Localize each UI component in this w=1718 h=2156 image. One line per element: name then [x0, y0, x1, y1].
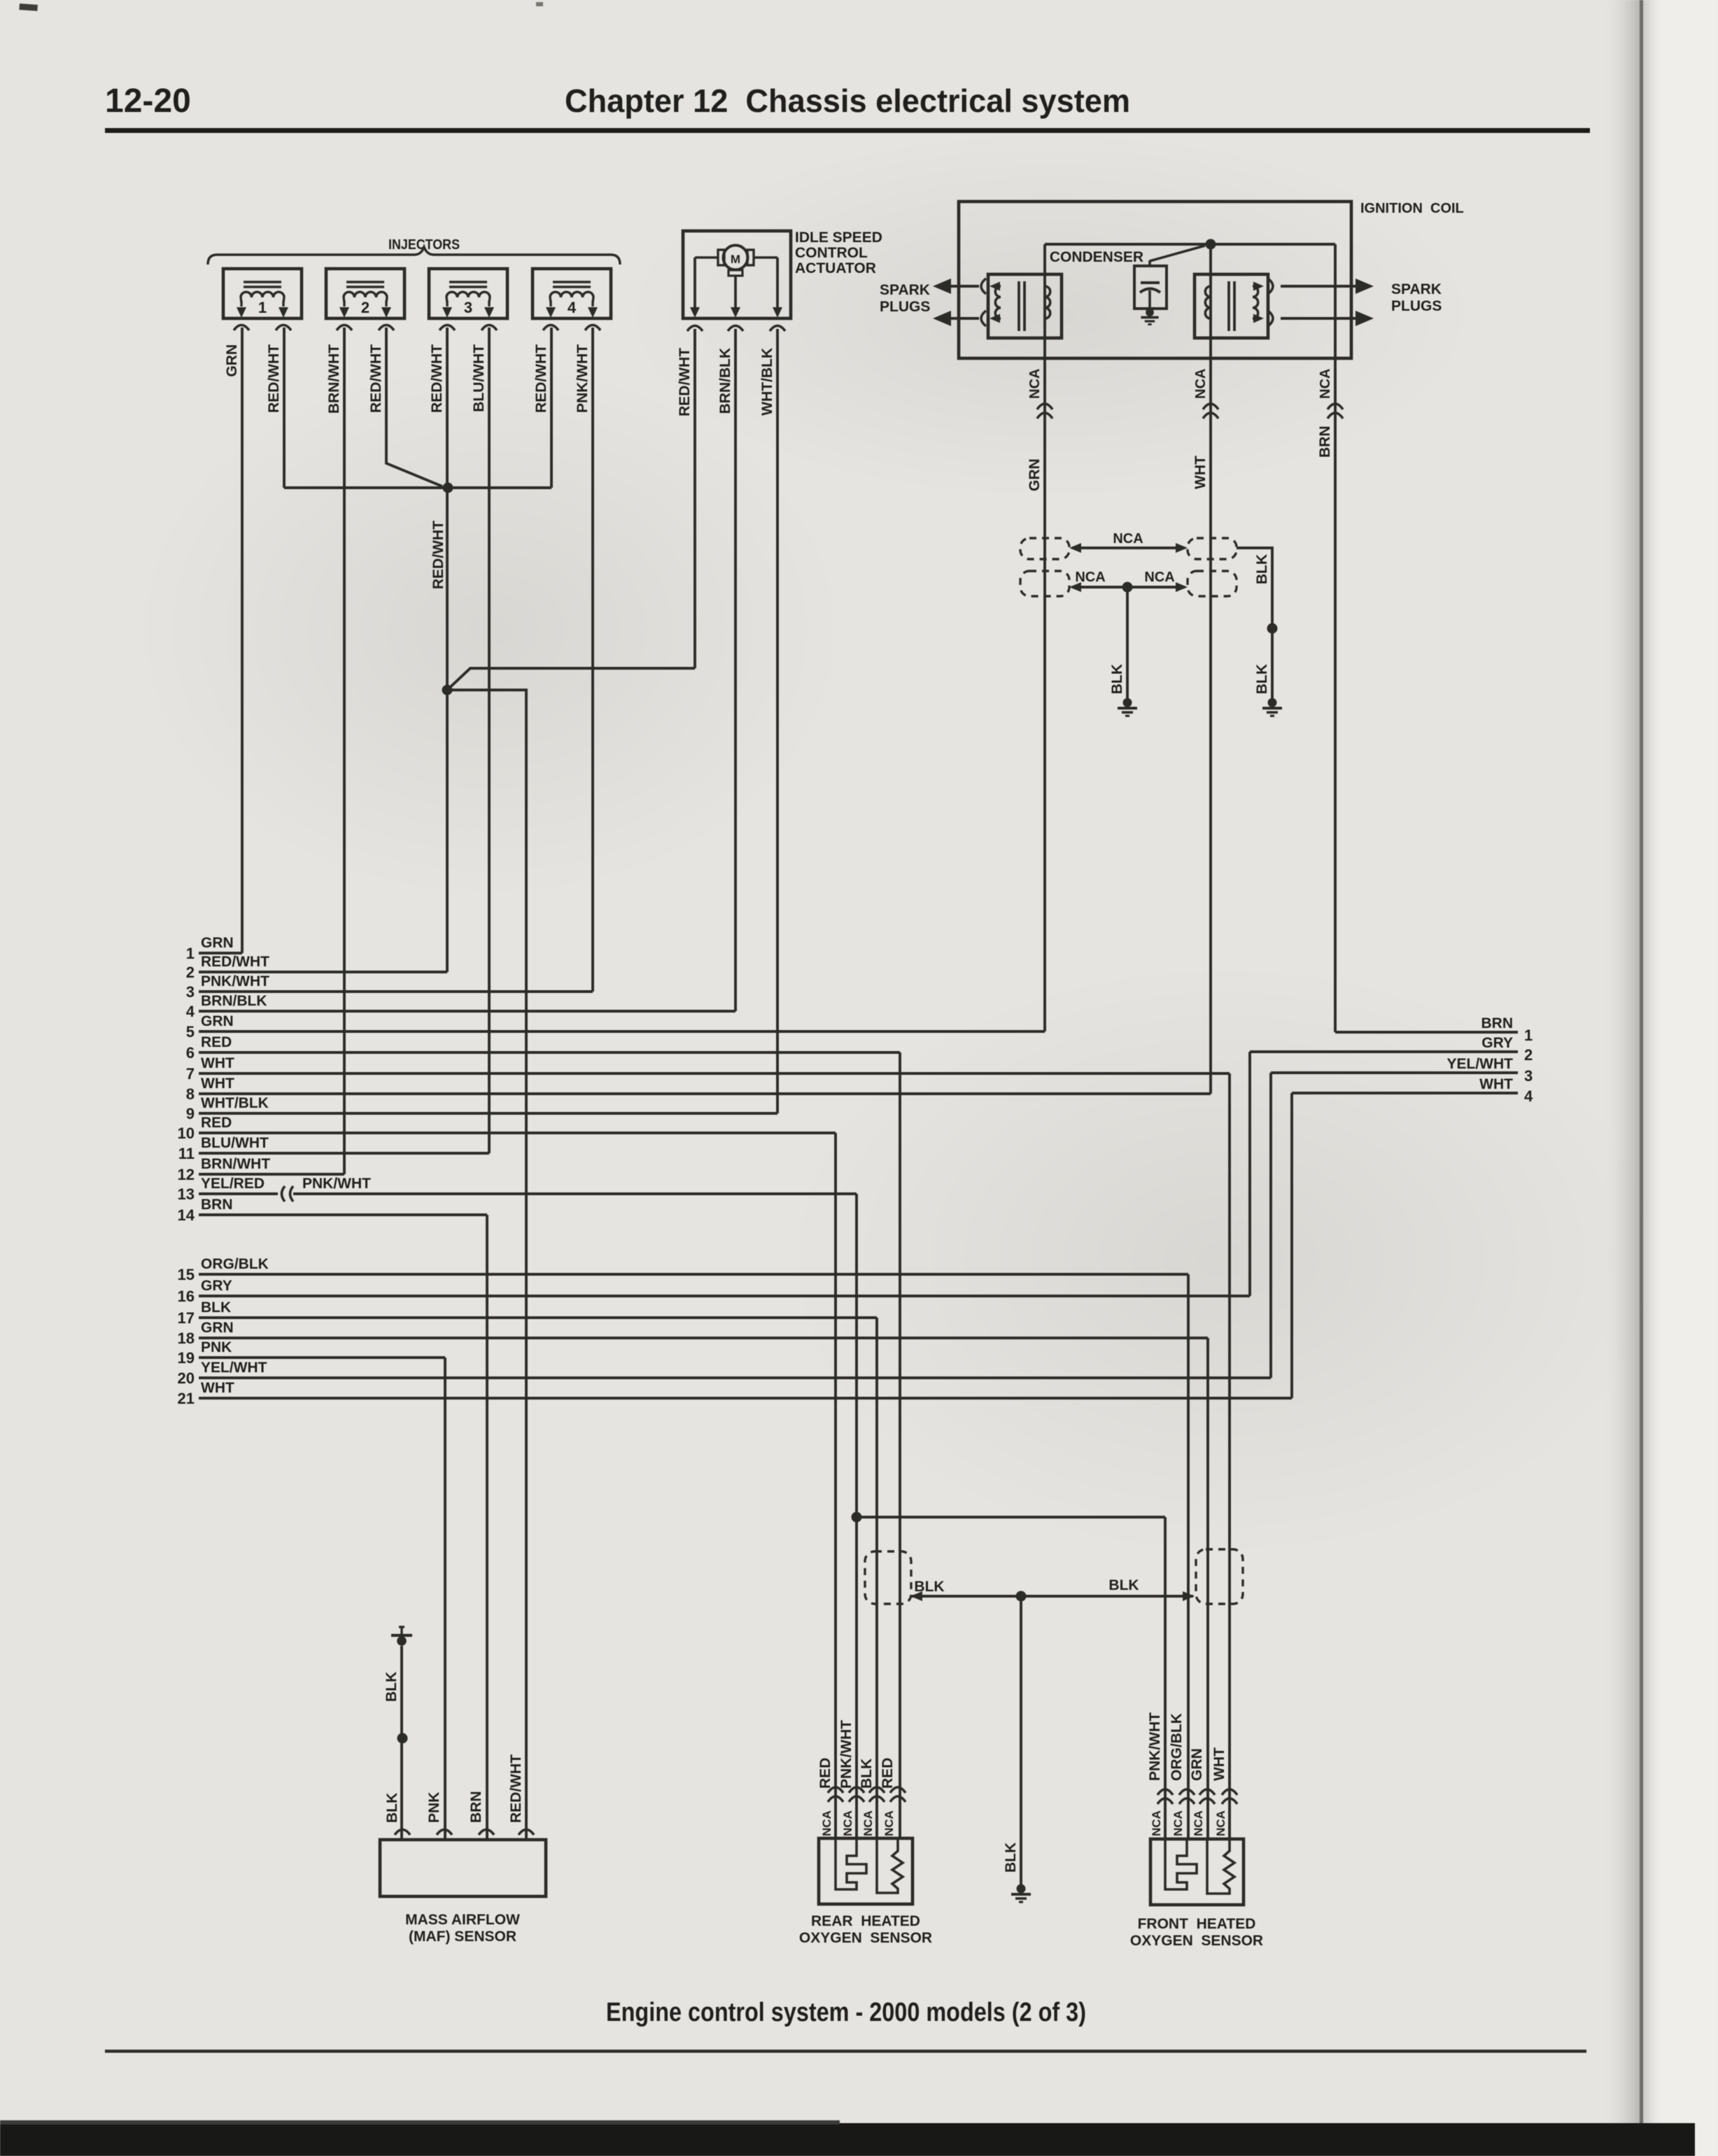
svg-text:GRN: GRN — [201, 1320, 234, 1336]
svg-text:WHT: WHT — [1211, 1747, 1227, 1781]
svg-text:BLK: BLK — [384, 1793, 400, 1823]
svg-text:NCA: NCA — [1075, 570, 1105, 585]
svg-text:SPARK: SPARK — [880, 282, 930, 298]
svg-text:CONTROL: CONTROL — [795, 245, 868, 261]
svg-text:(MAF) SENSOR: (MAF) SENSOR — [409, 1929, 516, 1945]
svg-text:GRN: GRN — [1027, 458, 1043, 491]
svg-text:RED/WHT: RED/WHT — [368, 344, 384, 413]
svg-text:YEL/RED: YEL/RED — [201, 1176, 265, 1192]
svg-text:YEL/WHT: YEL/WHT — [1447, 1056, 1514, 1072]
svg-text:4: 4 — [1524, 1087, 1533, 1105]
svg-text:ORG/BLK: ORG/BLK — [201, 1256, 269, 1272]
svg-text:NCA: NCA — [1193, 369, 1209, 399]
svg-text:BRN: BRN — [201, 1197, 233, 1213]
svg-text:3: 3 — [186, 983, 195, 1001]
svg-text:NCA: NCA — [841, 1810, 854, 1836]
svg-text:GRN: GRN — [201, 935, 234, 951]
svg-text:18: 18 — [178, 1330, 195, 1347]
svg-text:RED/WHT: RED/WHT — [201, 954, 269, 970]
svg-text:NCA: NCA — [861, 1810, 875, 1836]
svg-text:NCA: NCA — [1171, 1810, 1185, 1836]
svg-text:REAR HEATED: REAR HEATED — [811, 1913, 920, 1929]
svg-text:BLK: BLK — [1109, 664, 1125, 694]
svg-text:13: 13 — [178, 1185, 195, 1203]
svg-text:RED: RED — [201, 1115, 232, 1131]
svg-text:RED: RED — [880, 1758, 896, 1789]
svg-text:16: 16 — [178, 1288, 195, 1305]
svg-text:WHT/BLK: WHT/BLK — [759, 348, 775, 416]
svg-text:BLK: BLK — [914, 1579, 944, 1595]
svg-text:NCA: NCA — [820, 1810, 833, 1836]
svg-text:NCA: NCA — [1144, 570, 1174, 585]
svg-text:NCA: NCA — [1214, 1810, 1227, 1836]
svg-text:RED/WHT: RED/WHT — [430, 521, 446, 589]
svg-text:4: 4 — [186, 1003, 195, 1020]
svg-text:4: 4 — [568, 299, 577, 316]
svg-text:PLUGS: PLUGS — [880, 299, 930, 315]
svg-text:IGNITION COIL: IGNITION COIL — [1360, 201, 1464, 216]
svg-text:6: 6 — [186, 1044, 195, 1062]
svg-text:2: 2 — [361, 299, 369, 316]
svg-text:3: 3 — [464, 299, 472, 316]
svg-text:M: M — [731, 253, 740, 266]
svg-text:12: 12 — [178, 1166, 195, 1183]
svg-text:2: 2 — [186, 964, 195, 981]
svg-text:OXYGEN SENSOR: OXYGEN SENSOR — [799, 1930, 932, 1946]
svg-text:GRN: GRN — [224, 344, 240, 377]
svg-text:12-20: 12-20 — [105, 83, 191, 120]
svg-text:BRN/WHT: BRN/WHT — [201, 1156, 270, 1172]
svg-text:BRN: BRN — [1317, 426, 1333, 458]
svg-text:17: 17 — [178, 1309, 195, 1327]
svg-text:1: 1 — [1524, 1027, 1533, 1044]
svg-text:ACTUATOR: ACTUATOR — [795, 260, 876, 276]
svg-text:BLK: BLK — [1254, 664, 1270, 694]
svg-text:10: 10 — [178, 1125, 195, 1142]
svg-text:FRONT HEATED: FRONT HEATED — [1138, 1916, 1256, 1932]
svg-text:WHT: WHT — [1479, 1076, 1513, 1092]
svg-text:PNK: PNK — [426, 1792, 442, 1823]
svg-text:Engine control system - 2000 m: Engine control system - 2000 models (2 o… — [606, 1998, 1086, 2027]
svg-text:PNK/WHT: PNK/WHT — [201, 973, 269, 989]
svg-text:PNK/WHT: PNK/WHT — [302, 1176, 371, 1192]
svg-text:14: 14 — [178, 1206, 195, 1224]
svg-text:5: 5 — [186, 1023, 195, 1041]
svg-text:BLK: BLK — [1003, 1843, 1019, 1873]
svg-text:GRN: GRN — [201, 1013, 234, 1029]
svg-text:GRY: GRY — [201, 1278, 232, 1294]
svg-text:BLK: BLK — [383, 1672, 400, 1702]
svg-text:RED: RED — [201, 1034, 232, 1050]
svg-text:PNK/WHT: PNK/WHT — [575, 344, 591, 413]
svg-text:PNK/WHT: PNK/WHT — [838, 1720, 854, 1789]
svg-text:BRN: BRN — [468, 1791, 484, 1824]
svg-text:BLK: BLK — [1254, 554, 1270, 584]
svg-text:RED/WHT: RED/WHT — [266, 344, 282, 413]
svg-text:WHT: WHT — [201, 1380, 234, 1396]
svg-text:NCA: NCA — [1027, 369, 1043, 399]
svg-text:RED/WHT: RED/WHT — [508, 1754, 524, 1823]
svg-text:GRY: GRY — [1481, 1035, 1513, 1051]
svg-text:BRN: BRN — [1481, 1015, 1514, 1031]
svg-text:CONDENSER: CONDENSER — [1050, 249, 1143, 265]
svg-text:BRN/BLK: BRN/BLK — [717, 348, 733, 414]
svg-text:RED/WHT: RED/WHT — [677, 348, 693, 416]
svg-text:8: 8 — [186, 1085, 195, 1103]
svg-text:2: 2 — [1524, 1046, 1533, 1064]
svg-text:MASS AIRFLOW: MASS AIRFLOW — [405, 1912, 520, 1928]
svg-text:BRN/BLK: BRN/BLK — [201, 993, 267, 1009]
svg-text:OXYGEN SENSOR: OXYGEN SENSOR — [1130, 1933, 1263, 1949]
svg-text:1: 1 — [186, 945, 195, 962]
svg-text:BLK: BLK — [201, 1299, 231, 1316]
svg-text:RED/WHT: RED/WHT — [429, 344, 445, 413]
svg-text:PNK: PNK — [201, 1339, 232, 1355]
svg-text:PNK/WHT: PNK/WHT — [1147, 1712, 1163, 1781]
svg-text:BLU/WHT: BLU/WHT — [471, 344, 487, 412]
svg-text:GRN: GRN — [1189, 1748, 1205, 1781]
svg-text:BLU/WHT: BLU/WHT — [201, 1135, 269, 1151]
svg-text:Chapter 12 Chassis electrical: Chapter 12 Chassis electrical system — [565, 83, 1130, 119]
svg-text:15: 15 — [178, 1266, 195, 1283]
svg-text:SPARK: SPARK — [1391, 281, 1442, 297]
svg-text:9: 9 — [186, 1105, 195, 1122]
svg-text:3: 3 — [1524, 1067, 1533, 1085]
svg-text:NCA: NCA — [1318, 369, 1333, 399]
svg-text:RED: RED — [817, 1758, 833, 1789]
svg-text:NCA: NCA — [1192, 1810, 1205, 1836]
svg-text:PLUGS: PLUGS — [1391, 298, 1442, 314]
svg-text:7: 7 — [186, 1065, 195, 1083]
svg-text:IDLE SPEED: IDLE SPEED — [795, 230, 882, 246]
svg-text:WHT: WHT — [1192, 456, 1209, 489]
svg-text:NCA: NCA — [882, 1810, 896, 1836]
svg-text:WHT: WHT — [201, 1076, 234, 1092]
svg-text:BRN/WHT: BRN/WHT — [326, 344, 342, 414]
svg-text:11: 11 — [178, 1145, 195, 1162]
svg-text:20: 20 — [178, 1369, 195, 1387]
svg-text:BLK: BLK — [859, 1759, 875, 1789]
svg-text:WHT/BLK: WHT/BLK — [201, 1095, 269, 1111]
svg-text:RED/WHT: RED/WHT — [533, 344, 549, 413]
svg-text:ORG/BLK: ORG/BLK — [1169, 1713, 1185, 1781]
svg-text:NCA: NCA — [1113, 531, 1143, 547]
svg-text:1: 1 — [258, 299, 267, 316]
svg-text:YEL/WHT: YEL/WHT — [201, 1360, 267, 1376]
svg-text:WHT: WHT — [201, 1055, 234, 1071]
svg-text:19: 19 — [178, 1349, 195, 1367]
svg-text:21: 21 — [178, 1390, 195, 1407]
svg-text:NCA: NCA — [1150, 1810, 1163, 1836]
svg-text:BLK: BLK — [1108, 1577, 1139, 1593]
